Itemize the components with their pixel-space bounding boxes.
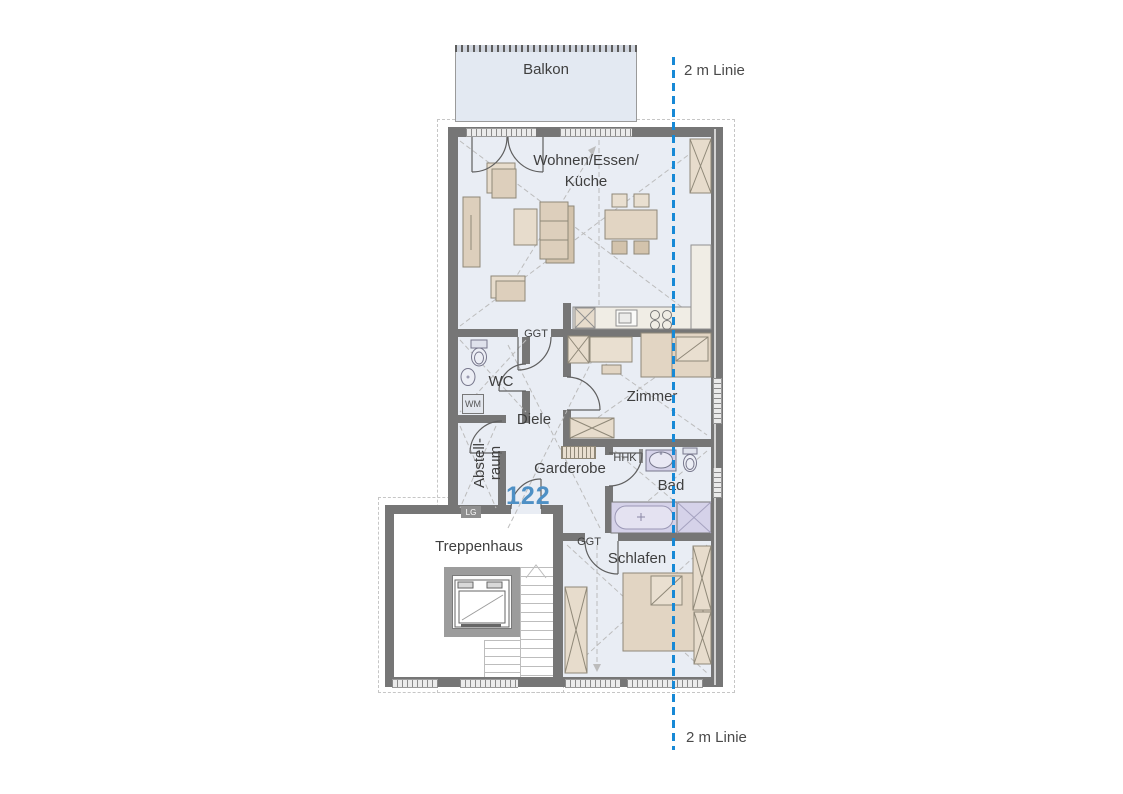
label-abstellraum: Abstell- raum [472, 418, 506, 508]
label-wohnen: Wohnen/Essen/ Küche [506, 150, 666, 192]
wall-stairwell-left [385, 505, 394, 687]
window-bad-right [713, 468, 722, 498]
window-stairwell-bottom-b [460, 679, 518, 688]
label-treppenhaus: Treppenhaus [433, 538, 525, 555]
window-stairwell-bottom-a [392, 679, 438, 688]
label-wc: WC [486, 373, 516, 390]
label-garderobe: Garderobe [533, 460, 607, 477]
marker-ggt-kitchen: GGT [523, 328, 549, 340]
unit-number: 122 [506, 482, 551, 511]
label-bad: Bad [656, 477, 686, 494]
two-meter-line [672, 57, 675, 750]
wall-kitchen-stub [563, 303, 571, 337]
label-wohnen-line2: Küche [565, 173, 608, 190]
stairs-flight-right [520, 567, 555, 684]
washing-machine-label: WM [465, 399, 481, 409]
window-top-right [560, 128, 632, 137]
label-abstell-line1: Abstell- [471, 438, 488, 488]
wall-bad-bottom-b [618, 533, 711, 541]
wall-left [448, 127, 458, 514]
wall-stairwell-right [553, 505, 563, 687]
marker-ggt-schlafen: GGT [576, 536, 602, 548]
balcony-railing-hatch [455, 45, 637, 52]
label-diele: Diele [504, 411, 564, 428]
wall-wc-right-a [522, 337, 530, 364]
wall-living-sep-right [551, 329, 711, 337]
label-abstell-line2: raum [487, 446, 504, 480]
wall-living-sep-left [458, 329, 518, 337]
room-balkon [455, 45, 637, 122]
label-balkon: Balkon [486, 61, 606, 78]
two-meter-label-bottom: 2 m Linie [686, 729, 747, 746]
window-schlafen-bottom-a [565, 679, 620, 688]
window-top-left [466, 128, 536, 137]
floor-plan: WM LG Balkon Wohnen/Essen/ Küche WC Diel… [0, 0, 1123, 794]
wall-bad-left-b [605, 486, 613, 533]
marker-hhk: HHK [612, 452, 638, 464]
wall-zimmer-left-a [563, 337, 571, 377]
coat-rack [561, 446, 596, 459]
washing-machine-box: WM [462, 394, 484, 414]
two-meter-label-top: 2 m Linie [684, 62, 745, 79]
elevator-shaft-interior [452, 575, 512, 629]
label-schlafen: Schlafen [606, 550, 668, 567]
lg-label: LG [466, 508, 477, 517]
window-schlafen-bottom-b [627, 679, 703, 688]
window-zimmer-right [713, 378, 722, 424]
label-wohnen-line1: Wohnen/Essen/ [533, 152, 639, 169]
